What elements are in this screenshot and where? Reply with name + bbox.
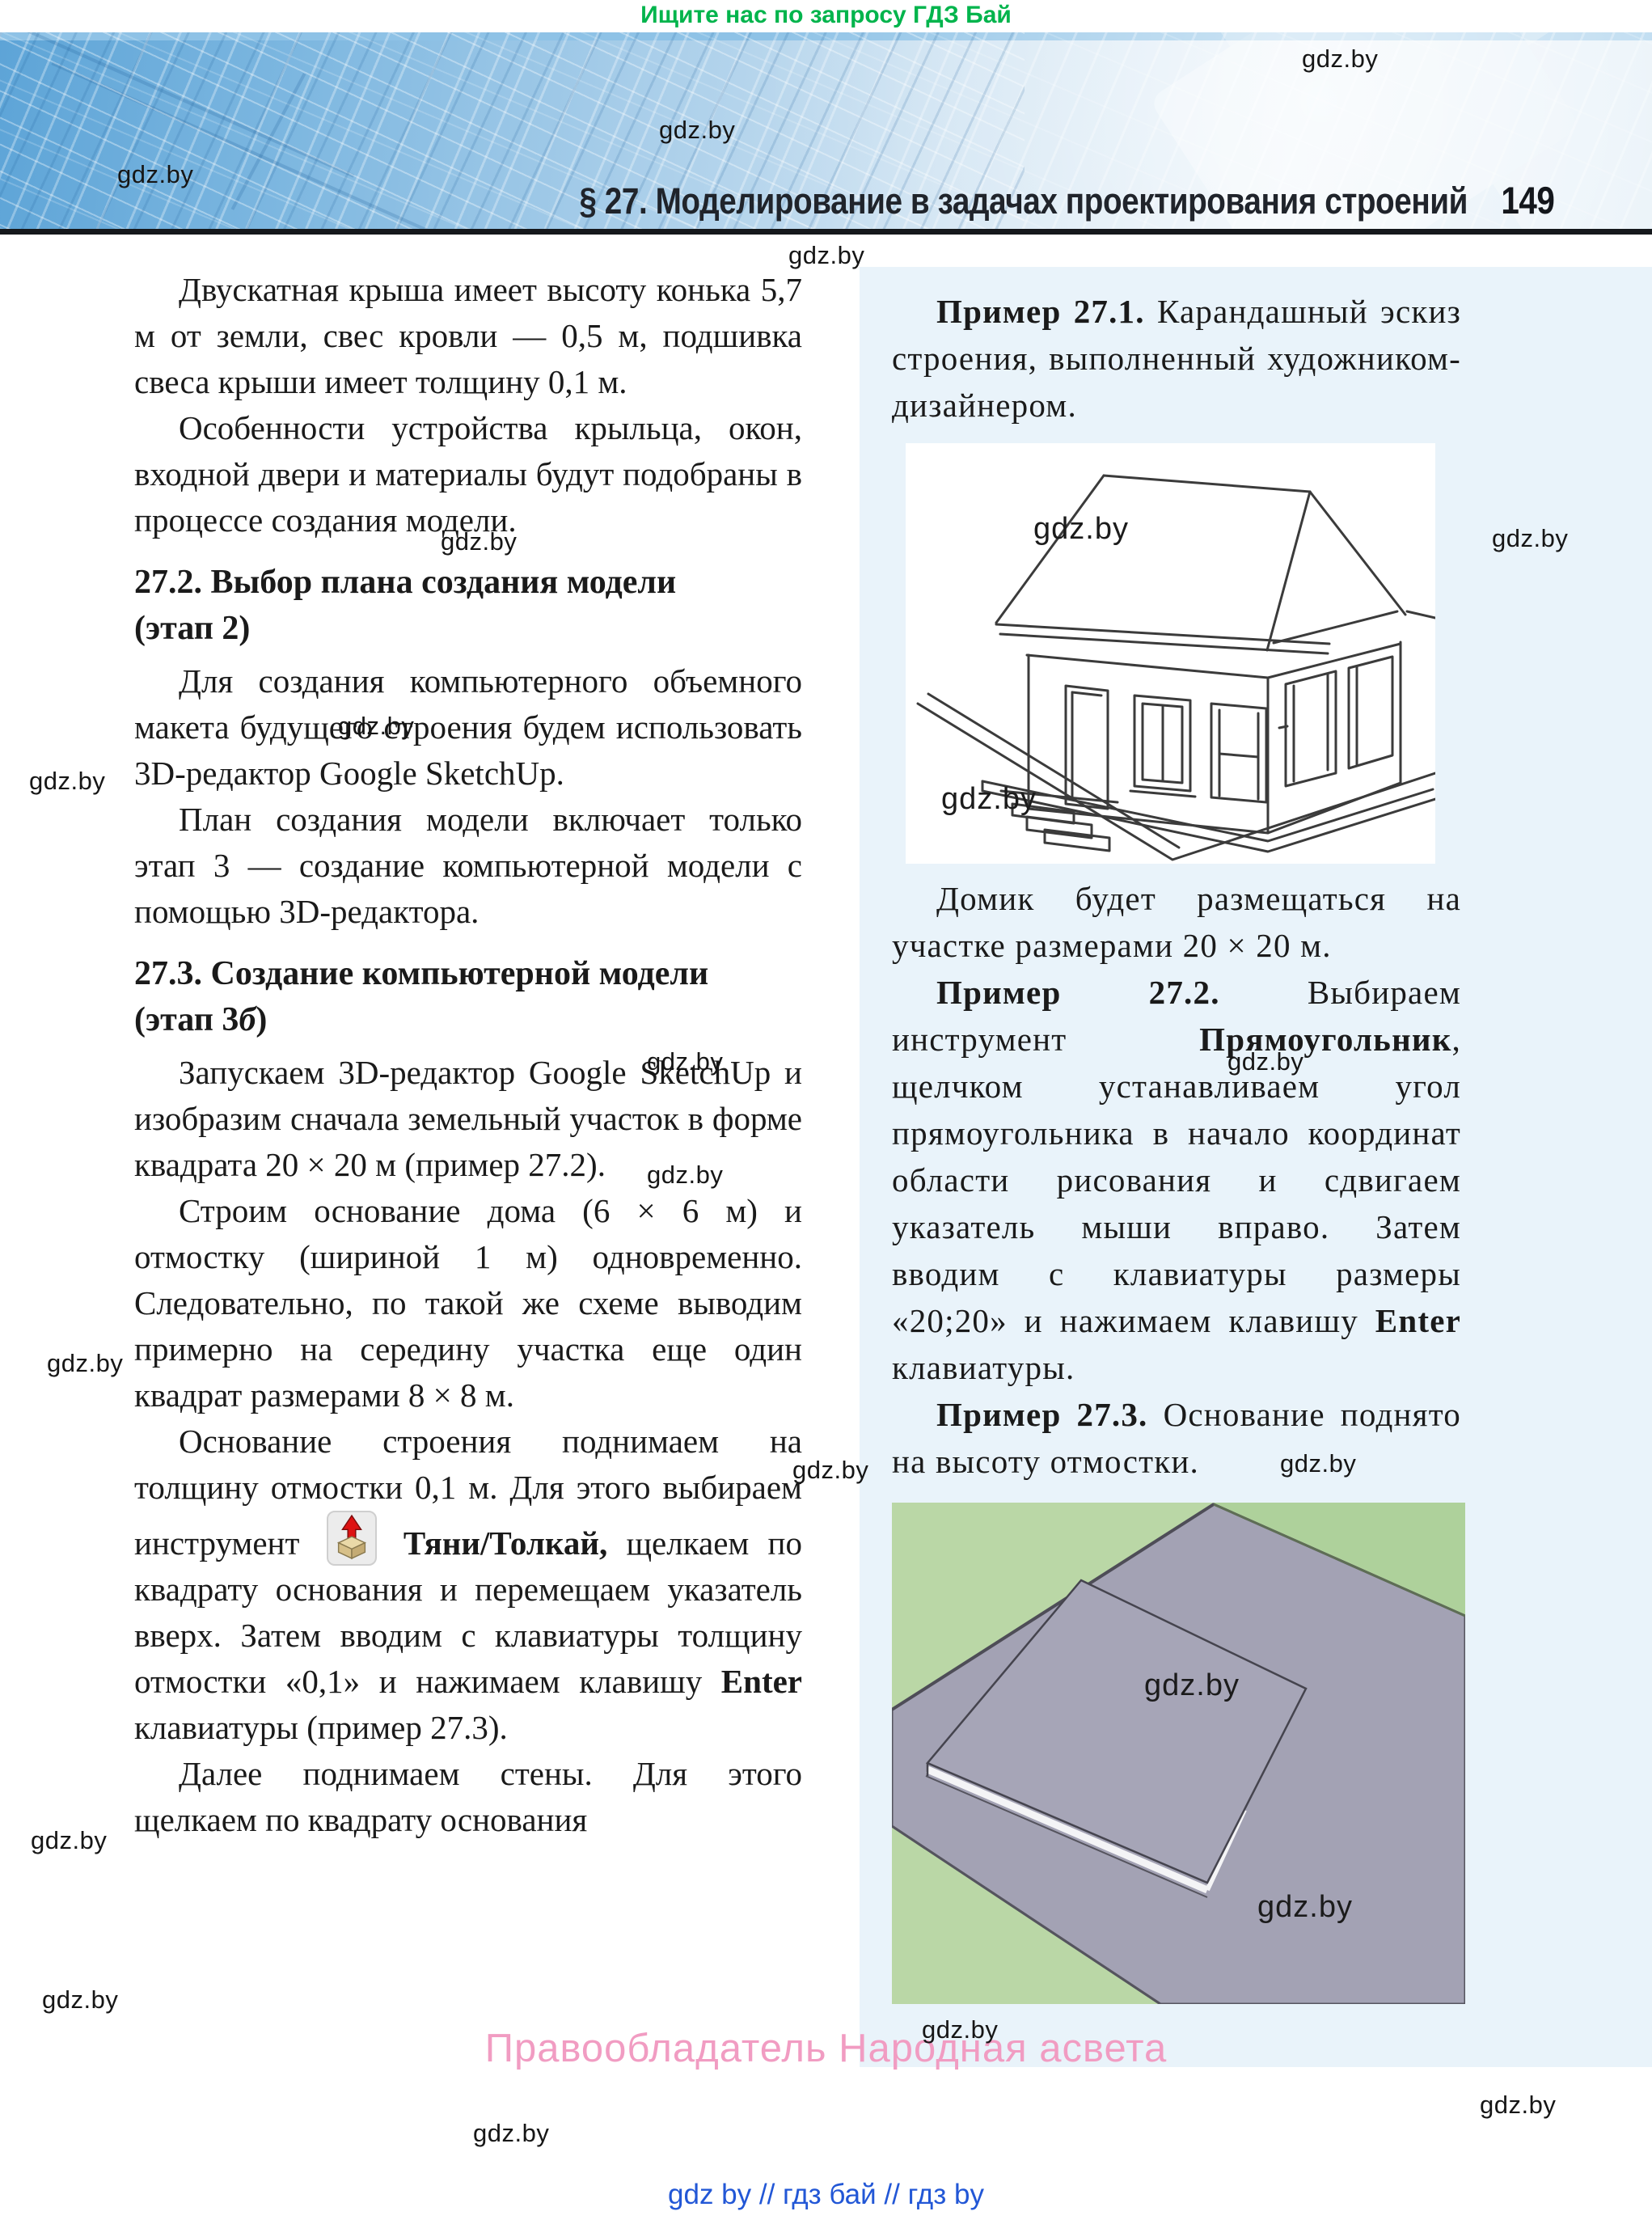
gdz-watermark: gdz.by — [922, 2015, 998, 2044]
gdz-watermark: gdz.by — [1257, 1890, 1353, 1924]
gdz-watermark: gdz.by — [473, 2119, 549, 2148]
paragraph-sketchup-choice: Для создания компьютерного объемного мак… — [134, 658, 802, 797]
text-segment: , щелчком устанавливаем угол прямоугольн… — [892, 1021, 1461, 1339]
page-number: 149 — [1501, 179, 1554, 222]
caption-plot-size: Домик будет размещаться на участке разме… — [892, 875, 1461, 969]
gdz-watermark: gdz.by — [1480, 2091, 1556, 2120]
terrain-3d-render: gdz.by gdz.by — [892, 1503, 1465, 2004]
promo-text: Ищите нас по запросу ГДЗ Бай — [0, 2, 1652, 29]
example-label: Пример 27.2. — [936, 974, 1220, 1011]
gdz-watermark: gdz.by — [659, 116, 735, 145]
circuit-trace — [0, 32, 354, 178]
footer-links[interactable]: gdz by // гдз бай // гдз by — [0, 2179, 1652, 2211]
header-banner-image: gdz.by gdz.by gdz.by § 27. Моделирование… — [0, 32, 1652, 229]
example-27-2: Пример 27.2. Выбираем инструмент Прямоуг… — [892, 969, 1461, 1391]
text-segment: клавиатуры (пример 27.3). — [134, 1709, 508, 1746]
chapter-title: § 27. Моделирование в задачах проектиров… — [579, 180, 1468, 222]
paragraph-push-pull: Основание строения поднимаем на толщину … — [134, 1419, 802, 1751]
heading-line: 27.2. Выбор плана создания модели — [134, 560, 802, 606]
gdz-watermark: gdz.by — [31, 1826, 107, 1855]
gdz-watermark: gdz.by — [1144, 1668, 1240, 1702]
example-label: Пример 27.3. — [936, 1396, 1148, 1433]
sketch-windows — [1130, 657, 1392, 802]
gdz-watermark: gdz.by — [47, 1349, 123, 1378]
paragraph-walls: Далее поднимаем стены. Для этого щелкаем… — [134, 1751, 802, 1843]
section-heading-27-3: 27.3. Создание компьютерной модели (этап… — [134, 951, 802, 1043]
circuit-trace — [51, 61, 466, 229]
gdz-watermark: gdz.by — [42, 1985, 118, 2015]
example-label: Пример 27.1. — [936, 293, 1145, 330]
house-sketch-drawing: gdz.by gdz.by — [906, 443, 1435, 864]
heading-line: (этап 3б) — [134, 997, 802, 1043]
chapter-header: § 27. Моделирование в задачах проектиров… — [579, 178, 1554, 222]
heading-line: 27.3. Создание компьютерной модели — [134, 951, 802, 997]
header-divider — [0, 229, 1652, 235]
paragraph-details: Особенности устройства крыльца, окон, вх… — [134, 405, 802, 543]
gdz-watermark: gdz.by — [792, 1456, 868, 1485]
enter-key-bold: Enter — [721, 1663, 802, 1700]
copyright-notice: Правообладатель Народная асвета — [0, 2026, 1652, 2071]
examples-panel: Пример 27.1. Карандашный эскиз строения,… — [860, 267, 1652, 2067]
paragraph-base: Строим основание дома (6 × 6 м) и отмост… — [134, 1188, 802, 1419]
textbook-page: Ищите нас по запросу ГДЗ Бай gdz.by gdz.… — [0, 0, 1652, 2224]
gdz-watermark: gdz.by — [1492, 524, 1568, 553]
gdz-watermark: gdz.by — [647, 1161, 723, 1190]
heading-line: (этап 2) — [134, 606, 802, 652]
house-sketch-figure: gdz.by gdz.by — [906, 443, 1435, 864]
circuit-trace — [231, 73, 306, 210]
gdz-watermark: gdz.by — [788, 241, 864, 270]
gdz-watermark: gdz.by — [1033, 512, 1129, 546]
terrain-3d-figure: gdz.by gdz.by — [892, 1503, 1465, 2004]
paragraph-plan: План создания модели включает только эта… — [134, 797, 802, 935]
gdz-watermark: gdz.by — [1280, 1449, 1356, 1478]
example-27-1: Пример 27.1. Карандашный эскиз строения,… — [892, 288, 1461, 429]
section-heading-27-2: 27.2. Выбор плана создания модели (этап … — [134, 560, 802, 652]
tool-name-bold: Тяни/Толкай, — [403, 1524, 607, 1562]
gdz-watermark: gdz.by — [1302, 44, 1378, 74]
gdz-watermark: gdz.by — [1227, 1047, 1303, 1076]
paragraph-roof: Двускатная крыша имеет высоту конька 5,7… — [134, 267, 802, 405]
gdz-watermark: gdz.by — [941, 782, 1037, 816]
gdz-watermark: gdz.by — [117, 160, 193, 189]
sketch-roof — [996, 476, 1405, 653]
gdz-watermark: gdz.by — [338, 712, 414, 741]
push-pull-tool-icon — [327, 1511, 377, 1566]
gdz-watermark: gdz.by — [29, 767, 105, 796]
gdz-watermark: gdz.by — [647, 1047, 723, 1076]
text-segment: клавиатуры. — [892, 1349, 1075, 1386]
enter-key-bold: Enter — [1375, 1302, 1461, 1339]
gdz-watermark: gdz.by — [441, 527, 517, 556]
example-27-3: Пример 27.3. Основание поднято на высоту… — [892, 1391, 1461, 1485]
